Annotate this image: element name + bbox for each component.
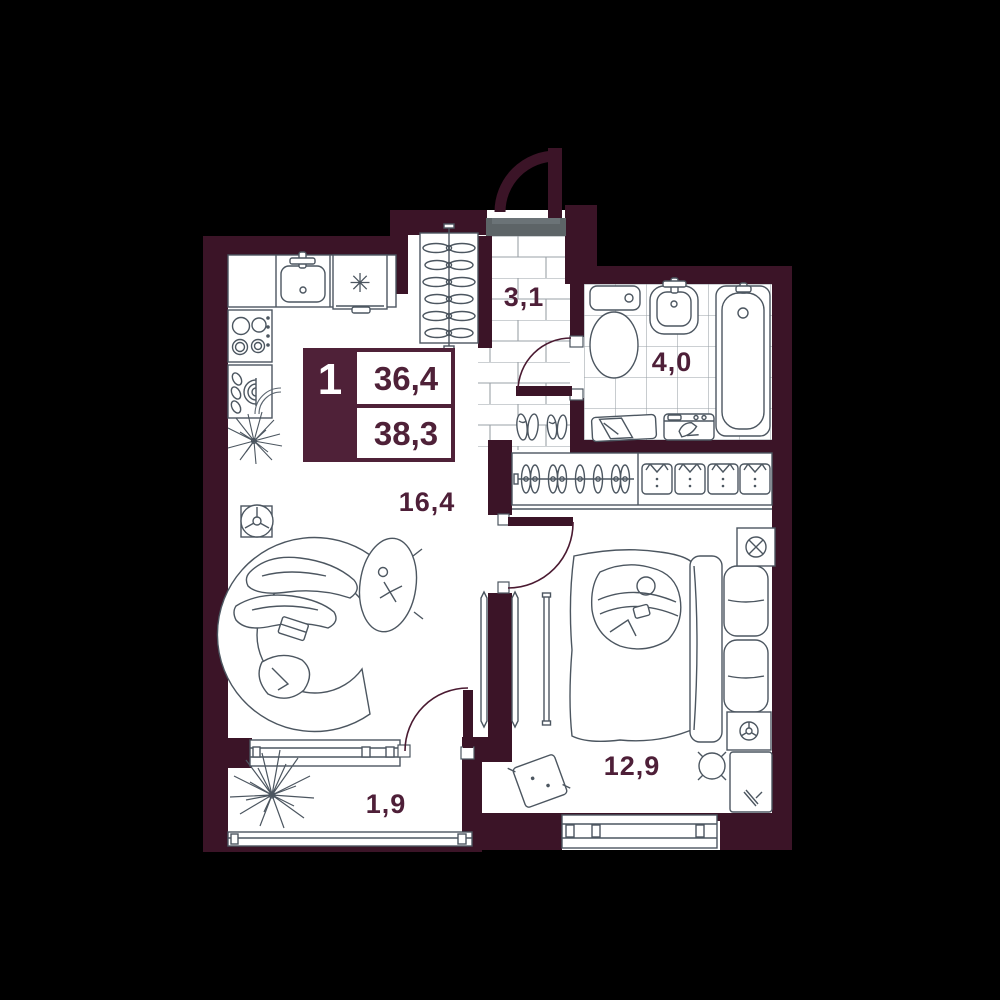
nightstand-top-icon [737,528,775,566]
stove-icon [228,310,272,362]
bathtub-icon [716,283,770,436]
nightstand-bottom-icon [727,712,771,750]
fridge-icon: ✳ [333,255,387,313]
legend-area-top: 36,4 [374,360,439,397]
balcony-glazing [228,832,472,846]
balcony-area-label: 1,9 [366,789,407,819]
freezer-symbol: ✳ [349,268,371,298]
entry-door [486,148,566,236]
legend-rooms-count: 1 [318,355,342,404]
hallway-area-label: 3,1 [504,282,545,312]
kitchen-cabinet-icon [228,365,272,418]
toilet-icon [590,286,640,378]
bench-icon [591,414,656,441]
desk-icon [730,752,772,812]
living-window [250,740,400,766]
tv-screen-icon [543,593,551,725]
washing-machine-icon [664,414,714,443]
coat-rack-icon [420,224,478,350]
kitchen-living-area-label: 16,4 [399,487,456,517]
legend-box: 1 36,4 38,3 [305,350,453,460]
legend-area-bottom: 38,3 [374,415,438,452]
floor-plan-canvas: ✳ [0,0,1000,1000]
tv-panel-bedroom-icon [512,592,518,727]
fan-icon [241,505,273,537]
bedroom-window [562,815,717,848]
wardrobe [512,453,772,509]
floor-plan: ✳ [0,0,1000,1000]
bedroom-area-label: 12,9 [604,751,661,781]
clothes-on-bed [592,565,681,649]
bathroom-area-label: 4,0 [652,347,693,377]
side-table-icon [698,752,726,780]
tv-panel-living-icon [481,592,487,727]
